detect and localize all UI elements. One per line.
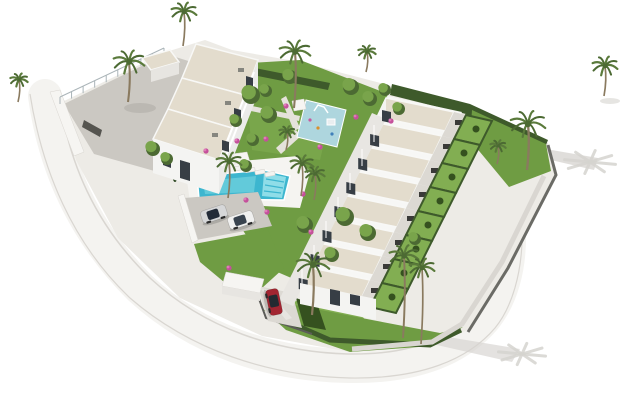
rooftop-ac-unit bbox=[225, 101, 231, 105]
rooftop-ac-unit bbox=[212, 133, 218, 137]
tree-canopy bbox=[246, 133, 256, 143]
end-unit-window bbox=[350, 294, 360, 306]
tree-canopy bbox=[378, 83, 388, 93]
flowers-light bbox=[227, 266, 230, 269]
flowers-light bbox=[309, 230, 312, 233]
flower-cluster bbox=[317, 144, 322, 149]
flower-cluster bbox=[226, 265, 231, 270]
townhouse-window bbox=[370, 134, 379, 147]
palm-crown-center bbox=[525, 121, 531, 127]
tree-canopy bbox=[335, 207, 349, 221]
play-toy-blue bbox=[330, 132, 333, 135]
tree-canopy bbox=[342, 78, 355, 91]
palm-crown-center bbox=[126, 59, 132, 65]
flower-cluster bbox=[264, 209, 269, 214]
rooftop-ac-unit bbox=[238, 68, 244, 72]
tree-canopy bbox=[282, 69, 293, 80]
palm-ground-shadow bbox=[124, 103, 156, 113]
tree-canopy bbox=[296, 216, 309, 229]
aerial-render bbox=[0, 0, 620, 406]
garden-hedge-bush bbox=[389, 294, 396, 301]
garden-hedge-bush bbox=[449, 174, 456, 181]
garden-hedge-bush bbox=[425, 222, 432, 229]
tree-canopy bbox=[229, 114, 239, 124]
garden-hedge-bush bbox=[461, 150, 468, 157]
render-canvas bbox=[0, 0, 620, 406]
flower-cluster bbox=[243, 197, 248, 202]
palm-shadow-small bbox=[600, 98, 620, 104]
palm-crown-center bbox=[310, 262, 316, 268]
palm-crown-center bbox=[286, 131, 289, 134]
flowers-light bbox=[284, 104, 287, 107]
townhouse-window bbox=[323, 230, 332, 243]
tree-canopy bbox=[145, 141, 156, 152]
garden-hedge-bush bbox=[473, 126, 480, 133]
palm-crown-center bbox=[420, 266, 425, 271]
townhouse-window bbox=[346, 182, 355, 195]
flower-cluster bbox=[263, 136, 268, 141]
play-structure bbox=[327, 119, 335, 125]
palm-crown-center bbox=[365, 50, 368, 53]
townhouse-window bbox=[358, 158, 367, 171]
flower-cluster bbox=[388, 118, 393, 123]
palm-crown-center bbox=[497, 145, 500, 148]
flowers-light bbox=[318, 145, 321, 148]
garden-hedge-bush bbox=[437, 198, 444, 205]
flowers-light bbox=[265, 210, 268, 213]
tree-canopy bbox=[392, 102, 402, 112]
flower-cluster bbox=[353, 114, 358, 119]
palm-crown-center bbox=[182, 10, 187, 15]
flowers-light bbox=[204, 149, 207, 152]
tree-canopy bbox=[259, 84, 269, 94]
block-a-window bbox=[222, 140, 229, 152]
palm-crown-center bbox=[17, 78, 20, 81]
tree-canopy bbox=[241, 85, 255, 99]
tree-canopy bbox=[362, 91, 373, 102]
tree-canopy bbox=[408, 232, 418, 242]
palm-crown-center bbox=[401, 253, 406, 258]
end-unit-door bbox=[330, 289, 340, 306]
flowers-light bbox=[235, 139, 238, 142]
flower-cluster bbox=[308, 229, 313, 234]
tree-canopy bbox=[324, 247, 335, 258]
flower-cluster bbox=[203, 148, 208, 153]
play-toy-pink bbox=[308, 118, 311, 121]
palm-crown-center bbox=[227, 160, 232, 165]
palm-crown-center bbox=[300, 162, 304, 166]
flower-cluster bbox=[283, 103, 288, 108]
flowers-light bbox=[264, 137, 267, 140]
flower-cluster bbox=[234, 138, 239, 143]
garden-hedge-bush bbox=[413, 246, 420, 253]
play-toy-orange bbox=[316, 126, 319, 129]
flowers-light bbox=[354, 115, 357, 118]
tree-canopy bbox=[359, 224, 372, 237]
tree-canopy bbox=[160, 152, 170, 162]
palm-crown-center bbox=[603, 64, 608, 69]
palm-crown-center bbox=[313, 172, 317, 176]
block-a-door bbox=[180, 160, 190, 181]
flowers-light bbox=[244, 198, 247, 201]
palm-crown-center bbox=[292, 49, 298, 55]
flowers-light bbox=[389, 119, 392, 122]
tree-canopy bbox=[260, 106, 273, 119]
